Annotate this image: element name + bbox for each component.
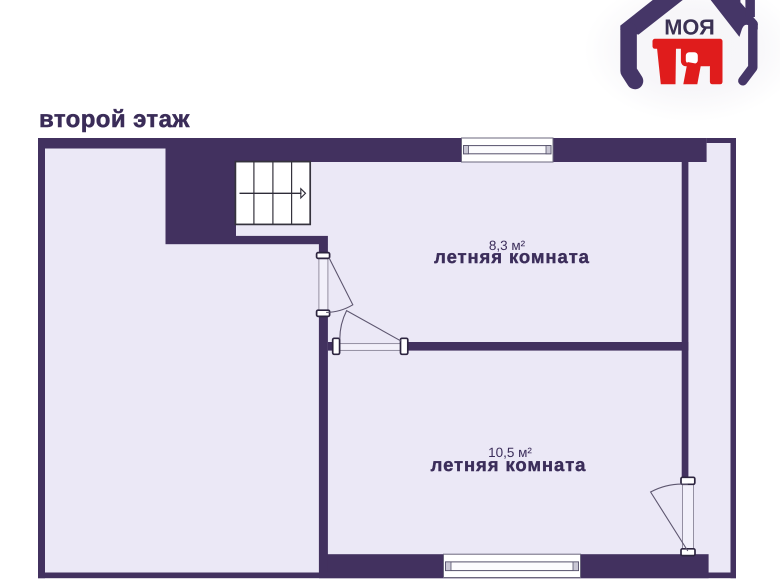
svg-text:летняя комната: летняя комната [434,246,590,267]
svg-text:МОЯ: МОЯ [664,15,715,40]
svg-text:летняя комната: летняя комната [431,454,587,475]
svg-text:второй этаж: второй этаж [39,106,190,133]
